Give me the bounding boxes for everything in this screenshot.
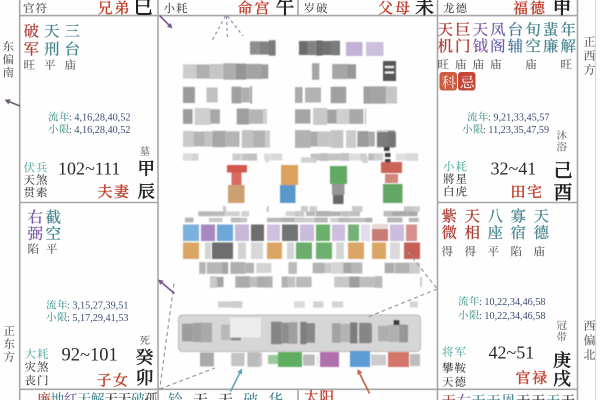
svg-text:92~101: 92~101 [62,346,118,366]
svg-text:: 3,15,27,39,51: : 3,15,27,39,51 [67,301,128,312]
svg-text:42~51: 42~51 [489,343,535,363]
svg-text:: 10,22,34,46,58: : 10,22,34,46,58 [479,297,546,308]
svg-text:32~41: 32~41 [491,159,537,179]
svg-text:: 5,17,29,41,53: : 5,17,29,41,53 [67,313,128,324]
svg-text:: 10,22,34,46,58: : 10,22,34,46,58 [479,311,546,322]
svg-text:: 11,23,35,47,59: : 11,23,35,47,59 [483,125,549,136]
svg-text:: 9,21,33,45,57: : 9,21,33,45,57 [488,113,549,124]
svg-text:102~111: 102~111 [58,159,120,179]
svg-text:: 4,16,28,40,52: : 4,16,28,40,52 [69,125,130,136]
svg-text:: 4,16,28,40,52: : 4,16,28,40,52 [69,113,130,124]
